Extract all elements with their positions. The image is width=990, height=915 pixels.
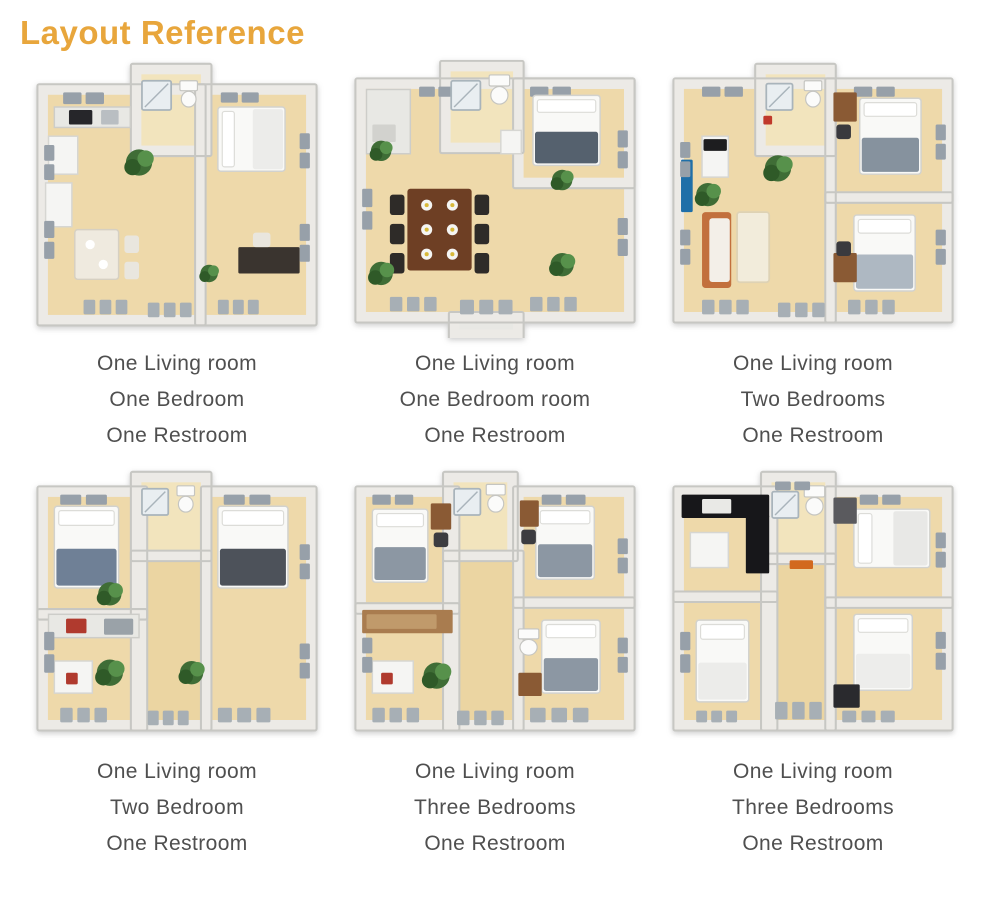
- floor-plan-5-image: [349, 468, 641, 746]
- caption-line: One Restroom: [342, 418, 648, 454]
- caption-line: One Restroom: [24, 826, 330, 862]
- caption-line: One Living room: [660, 346, 966, 382]
- caption-line: One Restroom: [660, 826, 966, 862]
- caption-line: Three Bedrooms: [342, 790, 648, 826]
- floor-plan-6-image: [667, 468, 959, 746]
- caption-line: Three Bedrooms: [660, 790, 966, 826]
- caption-line: One Bedroom: [24, 382, 330, 418]
- caption-line: One Living room: [660, 754, 966, 790]
- caption-line: One Living room: [342, 754, 648, 790]
- floor-plan-card-3: One Living room Two Bedrooms One Restroo…: [660, 60, 966, 454]
- caption-line: One Living room: [24, 346, 330, 382]
- page-title: Layout Reference: [20, 14, 990, 52]
- floor-plan-2-image: [349, 60, 641, 338]
- floor-plan-1-image: [31, 60, 323, 338]
- caption-line: One Restroom: [24, 418, 330, 454]
- floor-plan-card-1: One Living room One Bedroom One Restroom: [24, 60, 330, 454]
- floor-plan-6-caption: One Living room Three Bedrooms One Restr…: [660, 754, 966, 862]
- floor-plan-card-2: One Living room One Bedroom room One Res…: [342, 60, 648, 454]
- floor-plan-grid: One Living room One Bedroom One Restroom…: [0, 54, 990, 862]
- floor-plan-card-5: One Living room Three Bedrooms One Restr…: [342, 468, 648, 862]
- caption-line: One Living room: [24, 754, 330, 790]
- floor-plan-4-caption: One Living room Two Bedroom One Restroom: [24, 754, 330, 862]
- caption-line: Two Bedroom: [24, 790, 330, 826]
- caption-line: One Bedroom room: [342, 382, 648, 418]
- floor-plan-2-caption: One Living room One Bedroom room One Res…: [342, 346, 648, 454]
- caption-line: Two Bedrooms: [660, 382, 966, 418]
- caption-line: One Living room: [342, 346, 648, 382]
- floor-plan-1-caption: One Living room One Bedroom One Restroom: [24, 346, 330, 454]
- caption-line: One Restroom: [342, 826, 648, 862]
- floor-plan-3-caption: One Living room Two Bedrooms One Restroo…: [660, 346, 966, 454]
- floor-plan-3-image: [667, 60, 959, 338]
- floor-plan-5-caption: One Living room Three Bedrooms One Restr…: [342, 754, 648, 862]
- floor-plan-card-4: One Living room Two Bedroom One Restroom: [24, 468, 330, 862]
- floor-plan-4-image: [31, 468, 323, 746]
- caption-line: One Restroom: [660, 418, 966, 454]
- floor-plan-card-6: One Living room Three Bedrooms One Restr…: [660, 468, 966, 862]
